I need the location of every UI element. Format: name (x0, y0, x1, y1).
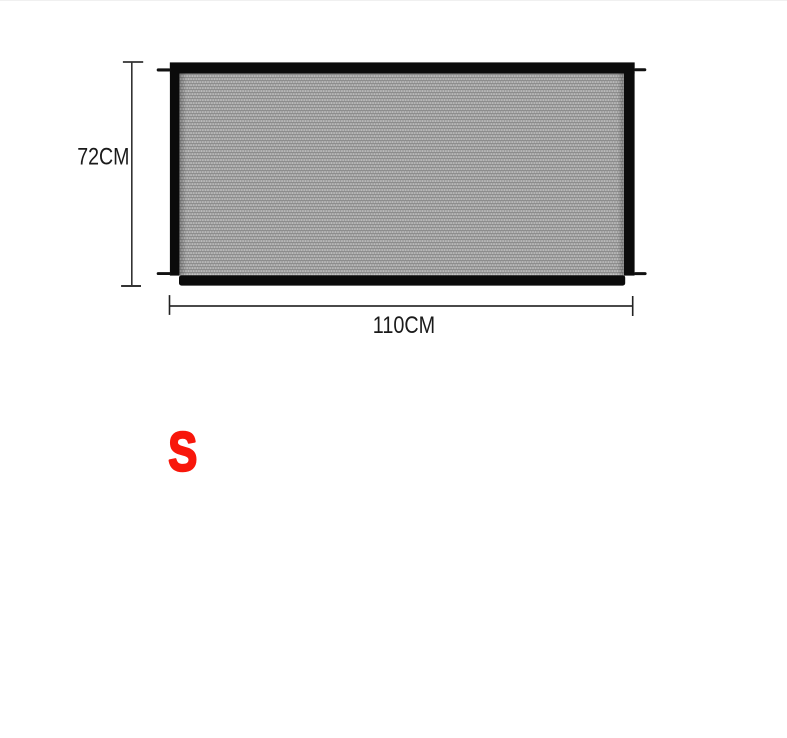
svg-text:110CM: 110CM (373, 313, 435, 339)
svg-text:S: S (168, 421, 197, 483)
svg-text:72CM: 72CM (77, 144, 129, 171)
